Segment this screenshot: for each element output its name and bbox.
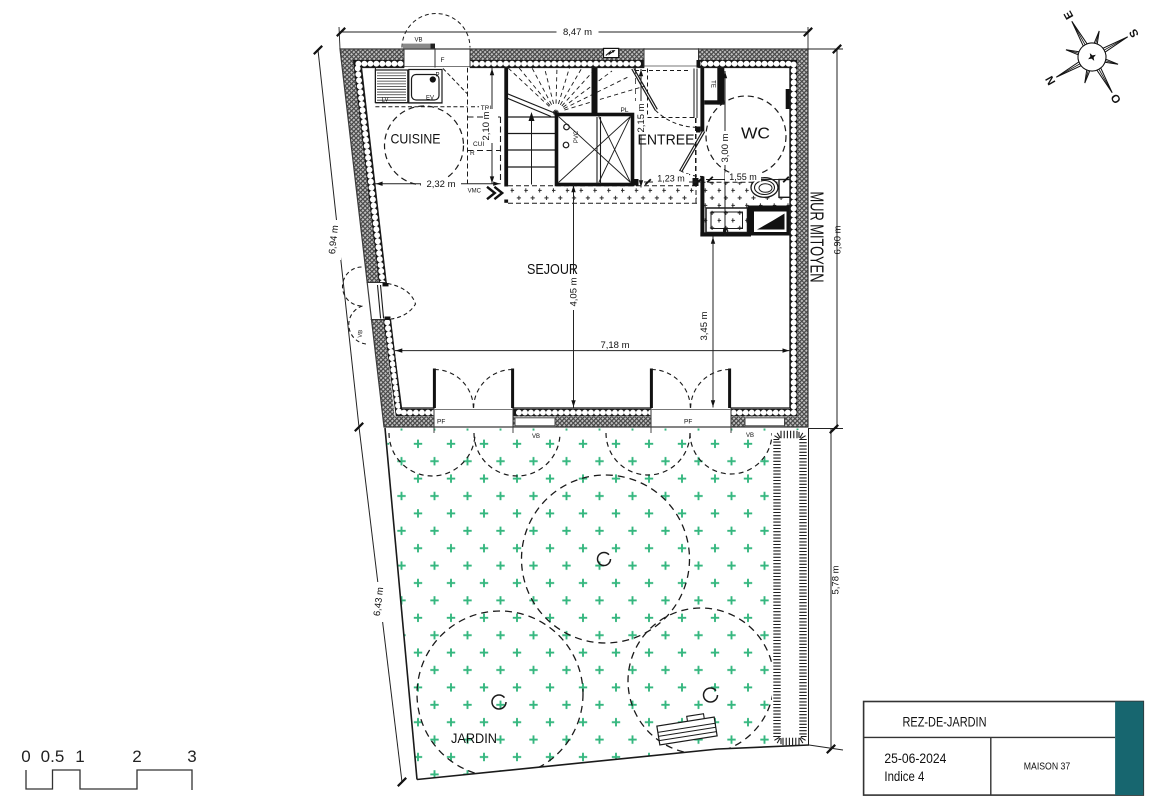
- svg-text:EV: EV: [426, 96, 434, 102]
- svg-text:1,55 m: 1,55 m: [729, 172, 757, 182]
- svg-text:VMC: VMC: [468, 189, 482, 195]
- svg-text:4,05 m: 4,05 m: [569, 277, 580, 306]
- svg-text:2: 2: [132, 747, 141, 766]
- svg-text:5,78 m: 5,78 m: [831, 565, 842, 594]
- svg-text:MAISON 37: MAISON 37: [1024, 762, 1071, 773]
- svg-text:3,00 m: 3,00 m: [720, 133, 731, 162]
- svg-text:1,23 m: 1,23 m: [657, 174, 685, 184]
- svg-text:3,45 m: 3,45 m: [699, 311, 710, 340]
- svg-text:2,15 m: 2,15 m: [636, 103, 647, 132]
- svg-text:MUR MITOYEN: MUR MITOYEN: [807, 192, 828, 283]
- svg-text:6,90 m: 6,90 m: [833, 225, 844, 254]
- svg-text:1: 1: [75, 747, 84, 766]
- svg-text:ENTREE: ENTREE: [638, 132, 695, 149]
- svg-text:VB: VB: [532, 434, 540, 440]
- svg-text:PVC: PVC: [574, 130, 580, 143]
- svg-text:VB: VB: [746, 433, 754, 439]
- svg-text:VB: VB: [414, 38, 422, 44]
- svg-text:7,18 m: 7,18 m: [600, 340, 629, 351]
- svg-text:CUI: CUI: [473, 141, 484, 148]
- svg-text:3: 3: [187, 747, 196, 766]
- svg-text:PL: PL: [621, 107, 629, 114]
- svg-text:JARDIN: JARDIN: [451, 730, 497, 746]
- svg-text:VB: VB: [358, 330, 365, 339]
- svg-text:2,32 m: 2,32 m: [426, 179, 455, 190]
- svg-text:8,47 m: 8,47 m: [563, 27, 592, 38]
- svg-text:TE: TE: [710, 80, 716, 88]
- svg-text:R: R: [470, 150, 475, 157]
- svg-text:PF: PF: [684, 419, 692, 426]
- svg-text:PF: PF: [437, 419, 445, 426]
- svg-text:2,10 m: 2,10 m: [481, 111, 492, 140]
- svg-text:LV: LV: [382, 98, 389, 104]
- svg-text:REZ-DE-JARDIN: REZ-DE-JARDIN: [903, 715, 987, 730]
- svg-text:25-06-2024: 25-06-2024: [884, 751, 946, 766]
- svg-text:0: 0: [21, 747, 30, 766]
- svg-text:P: P: [435, 73, 439, 79]
- svg-text:Indice 4: Indice 4: [884, 769, 924, 784]
- svg-text:WC: WC: [741, 126, 770, 143]
- svg-text:CUISINE: CUISINE: [391, 131, 441, 147]
- svg-text:0.5: 0.5: [41, 747, 65, 766]
- svg-text:F: F: [441, 57, 445, 64]
